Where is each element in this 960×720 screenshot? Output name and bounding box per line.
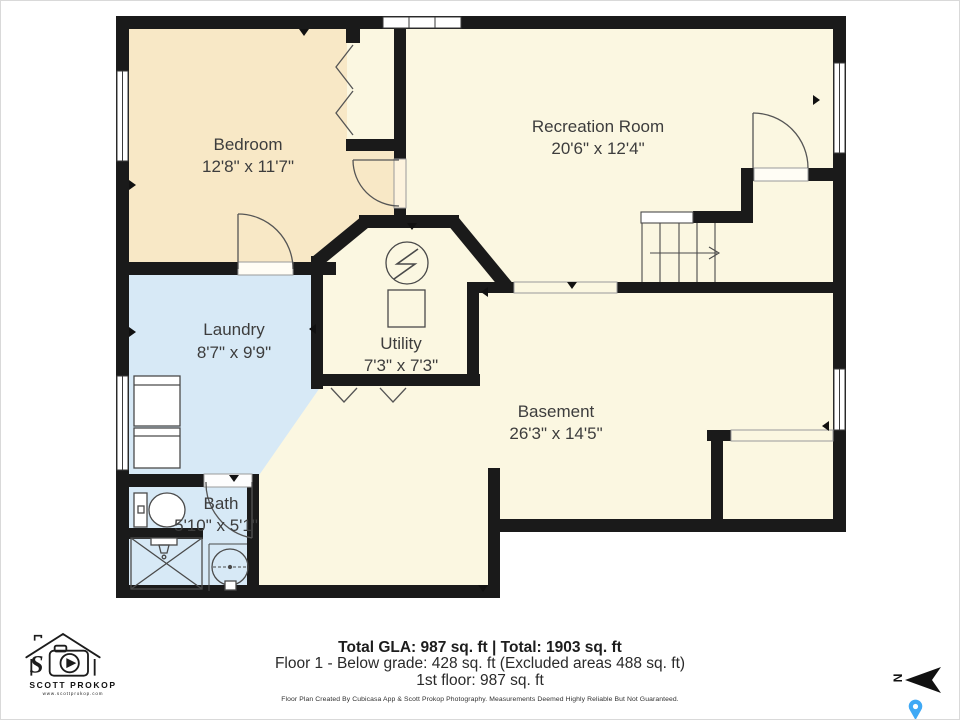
hall-door-opening <box>394 159 406 208</box>
laundry-label: Laundry <box>203 320 265 339</box>
wall-rec-basement <box>617 282 846 293</box>
basement-label: Basement <box>518 402 595 421</box>
area-summary: Total GLA: 987 sq. ft | Total: 1903 sq. … <box>1 639 959 703</box>
window-recreation-right <box>834 63 845 153</box>
bath-door-opening <box>204 474 252 487</box>
utility-label: Utility <box>380 334 422 353</box>
wall-bedroom-bottom <box>116 262 336 275</box>
wall-storage-stub <box>707 430 731 441</box>
window-laundry-left <box>117 376 128 470</box>
wall-laundry-right <box>311 256 323 389</box>
svg-text:S: S <box>30 651 44 678</box>
wall-utility-top <box>359 215 459 228</box>
wall-closet-stub <box>346 29 360 43</box>
bath-dims: 5'10" x 5'1" <box>174 516 258 535</box>
wall-closet-bottom <box>346 139 406 151</box>
floor1-area-line: Floor 1 - Below grade: 428 sq. ft (Exclu… <box>1 656 959 673</box>
bedroom-door-opening <box>238 262 293 275</box>
washer-icon <box>134 376 180 426</box>
recreation-label: Recreation Room <box>532 117 664 136</box>
laundry-dims: 8'7" x 9'9" <box>197 343 271 362</box>
dryer-icon <box>134 428 180 468</box>
first-floor-area-line: 1st floor: 987 sq. ft <box>1 673 959 690</box>
basement-opening <box>514 282 617 293</box>
total-area-line: Total GLA: 987 sq. ft | Total: 1903 sq. … <box>1 639 959 656</box>
wall-storage-left <box>711 430 723 519</box>
bedroom-label: Bedroom <box>214 135 283 154</box>
wall-utility-right <box>467 282 479 384</box>
wall-stairdoor-left <box>741 168 754 181</box>
basement-dims: 26'3" x 14'5" <box>509 424 602 443</box>
location-pin-icon <box>907 699 924 720</box>
wall-bottom-left <box>116 585 500 598</box>
window-top <box>383 17 461 28</box>
wall-stairdoor-right <box>808 168 846 181</box>
compass-north-arrow-icon <box>903 665 943 695</box>
bath-label: Bath <box>204 494 239 513</box>
bedroom-dims: 12'8" x 11'7" <box>202 157 294 176</box>
utility-dims: 7'3" x 7'3" <box>364 356 438 375</box>
wall-step <box>488 468 500 598</box>
floor-plan: Bedroom 12'8" x 11'7" Recreation Room 20… <box>1 1 960 631</box>
wall-utility-bottom <box>317 374 480 386</box>
photographer-logo: S SCOTT PROKOP www.scottprokop.com <box>21 629 125 696</box>
floor-plan-page: Bedroom 12'8" x 11'7" Recreation Room 20… <box>0 0 960 720</box>
recreation-dims: 20'6" x 12'4" <box>551 139 644 158</box>
stair-door-opening <box>754 168 808 181</box>
window-bedroom-left <box>117 71 128 161</box>
wall-bottom-right <box>488 519 846 532</box>
wall-bath-right <box>247 474 259 598</box>
logo-name: SCOTT PROKOP <box>21 680 125 690</box>
window-basement-right <box>834 369 845 430</box>
disclaimer-text: Floor Plan Created By Cubicasa App & Sco… <box>1 696 959 703</box>
compass: N <box>891 661 947 720</box>
wall-top <box>116 16 846 29</box>
storage-opening <box>731 430 833 441</box>
logo-website: www.scottprokop.com <box>21 691 125 696</box>
house-camera-icon: S <box>21 629 105 679</box>
